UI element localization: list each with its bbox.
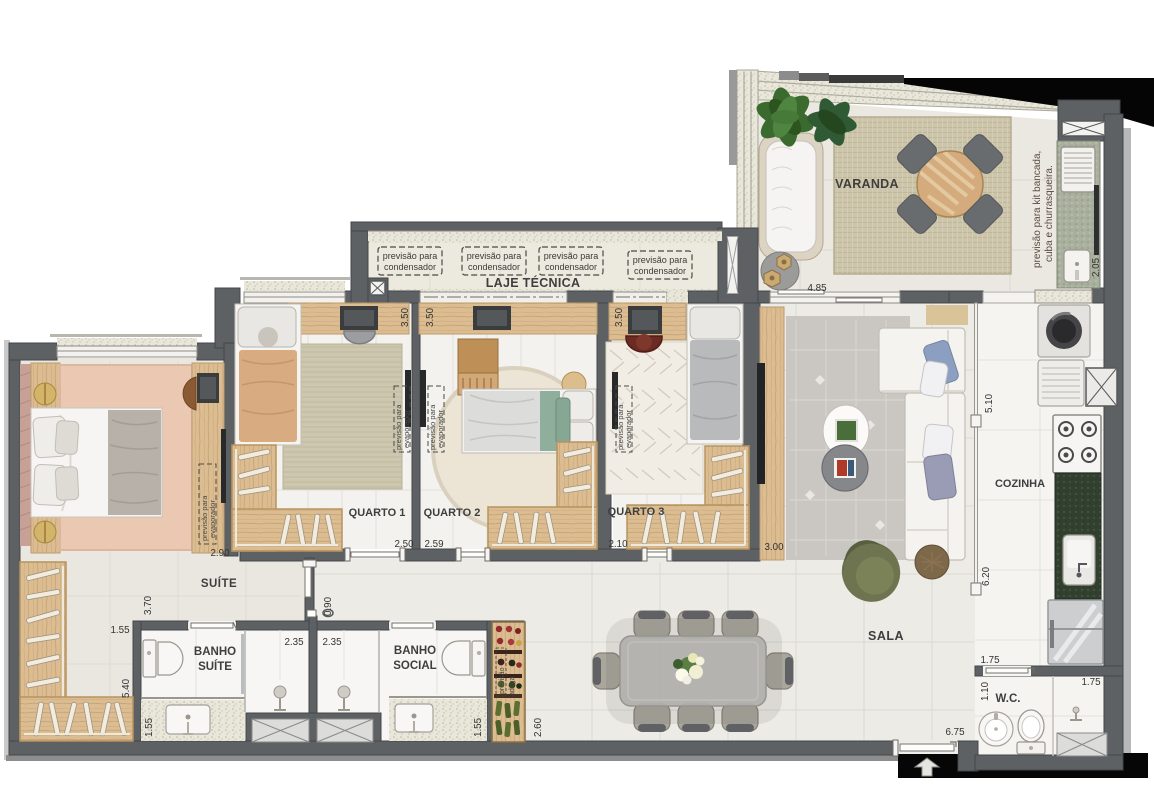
svg-text:adega: adega [509,676,516,696]
svg-text:4.85: 4.85 [807,283,827,294]
svg-text:QUARTO 3: QUARTO 3 [608,506,665,518]
svg-text:BANHO: BANHO [194,646,236,658]
svg-text:1.75: 1.75 [1081,677,1101,688]
svg-text:1.55: 1.55 [110,625,130,636]
svg-text:2.60: 2.60 [533,717,544,737]
svg-text:2.35: 2.35 [322,637,342,648]
svg-text:BANHO: BANHO [394,645,436,657]
svg-text:6.20: 6.20 [981,566,992,586]
svg-text:previsão para: previsão para [544,251,599,261]
svg-text:previsão: previsão [499,667,506,694]
svg-text:2.59: 2.59 [424,539,443,550]
svg-text:SUÍTE: SUÍTE [198,660,232,673]
svg-text:evaporador: evaporador [436,410,445,448]
svg-text:3.50: 3.50 [425,307,436,327]
svg-text:1.55: 1.55 [473,717,484,737]
svg-text:cuba e churrasqueira.: cuba e churrasqueira. [1044,165,1055,262]
svg-text:previsão para kit bancada,: previsão para kit bancada, [1032,151,1043,268]
svg-text:condensador: condensador [384,262,436,272]
svg-text:2.05: 2.05 [1091,257,1102,277]
svg-text:1.55: 1.55 [144,717,155,737]
svg-text:condensador: condensador [545,262,597,272]
svg-text:SALA: SALA [868,629,904,643]
svg-text:QUARTO 1: QUARTO 1 [349,507,406,519]
svg-text:SOCIAL: SOCIAL [393,660,436,672]
svg-text:3.50: 3.50 [400,307,411,327]
svg-text:LAJE TÉCNICA: LAJE TÉCNICA [486,275,581,290]
svg-text:previsão para: previsão para [633,255,688,265]
svg-text:3.70: 3.70 [143,595,154,615]
svg-text:evaporador: evaporador [402,410,411,448]
svg-text:3.50: 3.50 [614,307,625,327]
svg-text:1.10: 1.10 [980,681,991,701]
svg-text:5.10: 5.10 [984,393,995,413]
svg-text:2.10: 2.10 [608,539,628,550]
svg-text:QUARTO 2: QUARTO 2 [424,507,481,519]
svg-text:previsão para: previsão para [383,251,438,261]
svg-text:condensador: condensador [468,262,520,272]
svg-text:3.00: 3.00 [764,542,784,553]
svg-text:VARANDA: VARANDA [835,177,899,191]
svg-text:5.40: 5.40 [121,678,132,698]
svg-text:evaporador: evaporador [208,500,217,538]
svg-text:1.75: 1.75 [980,655,1000,666]
svg-text:evaporador: evaporador [624,410,633,448]
svg-text:COZINHA: COZINHA [995,478,1045,490]
svg-text:6.75: 6.75 [945,727,965,738]
svg-text:0.90: 0.90 [323,596,334,616]
svg-text:2.50: 2.50 [394,539,414,550]
svg-text:2.35: 2.35 [284,637,304,648]
svg-text:condensador: condensador [634,266,686,276]
svg-text:W.C.: W.C. [996,693,1021,705]
svg-text:SUÍTE: SUÍTE [201,577,237,590]
svg-text:previsão para: previsão para [467,251,522,261]
svg-text:2.90: 2.90 [210,548,230,559]
